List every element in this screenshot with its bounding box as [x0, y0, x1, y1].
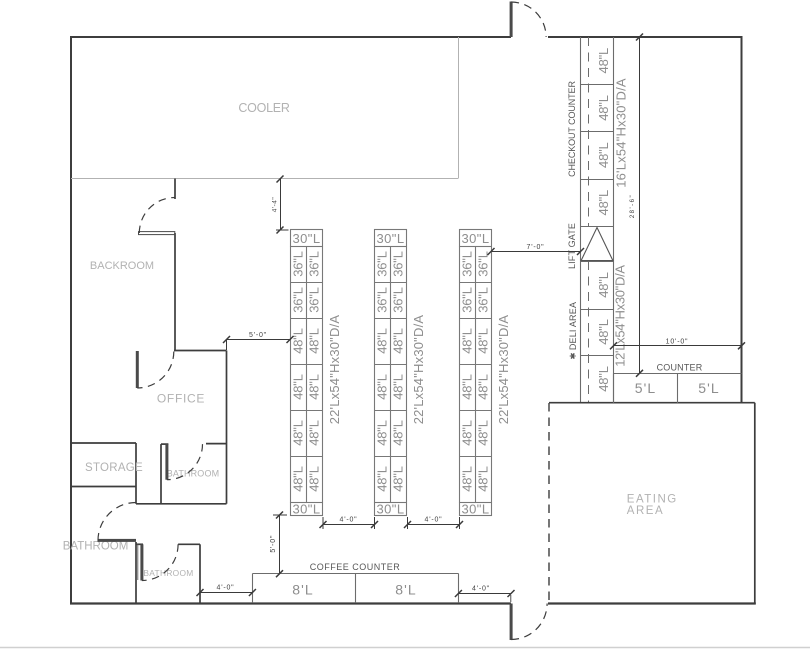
svg-text:LIFT GATE: LIFT GATE — [567, 223, 577, 269]
svg-text:BATHROOM: BATHROOM — [63, 541, 129, 553]
svg-text:AREA: AREA — [627, 505, 664, 517]
svg-text:BATHROOM: BATHROOM — [167, 469, 220, 479]
svg-text:48"L: 48"L — [476, 374, 491, 400]
svg-text:48"L: 48"L — [375, 466, 390, 492]
svg-text:4'-4": 4'-4" — [272, 197, 279, 213]
svg-text:48"L: 48"L — [476, 466, 491, 492]
svg-text:48"L: 48"L — [375, 328, 390, 354]
svg-text:48"L: 48"L — [307, 328, 322, 354]
svg-text:EATING: EATING — [627, 494, 678, 506]
svg-text:48"L: 48"L — [596, 95, 611, 121]
svg-text:48"L: 48"L — [391, 328, 406, 354]
svg-text:STORAGE: STORAGE — [85, 462, 143, 474]
svg-text:48"L: 48"L — [375, 374, 390, 400]
svg-text:28'-6": 28'-6" — [630, 194, 636, 218]
svg-text:30"L: 30"L — [293, 231, 321, 246]
svg-text:10'-0": 10'-0" — [666, 338, 689, 345]
svg-text:48"L: 48"L — [391, 374, 406, 400]
svg-text:30"L: 30"L — [293, 501, 321, 516]
svg-text:5'L: 5'L — [698, 380, 720, 396]
svg-text:OFFICE: OFFICE — [157, 392, 205, 406]
svg-text:5'L: 5'L — [635, 380, 657, 396]
svg-text:30"L: 30"L — [462, 501, 490, 516]
svg-text:48"L: 48"L — [596, 142, 611, 168]
svg-text:36"L: 36"L — [307, 287, 322, 313]
svg-text:22'Lx54"Hx30"D/A: 22'Lx54"Hx30"D/A — [327, 315, 342, 425]
svg-text:36"L: 36"L — [307, 251, 322, 277]
svg-text:36"L: 36"L — [391, 287, 406, 313]
svg-text:DELI AREA: DELI AREA — [568, 302, 578, 350]
svg-text:48"L: 48"L — [291, 420, 306, 446]
svg-text:COUNTER: COUNTER — [657, 362, 703, 372]
svg-text:48"L: 48"L — [391, 466, 406, 492]
svg-text:36"L: 36"L — [291, 251, 306, 277]
svg-text:48"L: 48"L — [391, 420, 406, 446]
svg-text:30"L: 30"L — [462, 231, 490, 246]
svg-text:COFFEE COUNTER: COFFEE COUNTER — [310, 562, 401, 572]
svg-text:48"L: 48"L — [375, 420, 390, 446]
svg-text:COOLER: COOLER — [238, 101, 290, 115]
svg-text:16'Lx54"Hx30"D/A: 16'Lx54"Hx30"D/A — [614, 78, 629, 188]
svg-text:48"L: 48"L — [291, 328, 306, 354]
svg-text:36"L: 36"L — [291, 287, 306, 313]
svg-text:4'-0": 4'-0" — [425, 517, 443, 524]
svg-text:36"L: 36"L — [391, 251, 406, 277]
svg-text:48"L: 48"L — [291, 466, 306, 492]
svg-text:48"L: 48"L — [307, 466, 322, 492]
svg-text:22'Lx54"Hx30"D/A: 22'Lx54"Hx30"D/A — [496, 315, 511, 425]
svg-text:48"L: 48"L — [596, 319, 611, 345]
svg-text:48"L: 48"L — [460, 374, 475, 400]
svg-text:48"L: 48"L — [307, 374, 322, 400]
svg-text:5'-0": 5'-0" — [270, 535, 277, 553]
svg-text:36"L: 36"L — [375, 251, 390, 277]
svg-text:30"L: 30"L — [377, 501, 405, 516]
svg-text:48"L: 48"L — [460, 328, 475, 354]
svg-text:48"L: 48"L — [307, 420, 322, 446]
svg-text:CHECKOUT COUNTER: CHECKOUT COUNTER — [567, 81, 577, 177]
svg-text:36"L: 36"L — [460, 287, 475, 313]
svg-text:48"L: 48"L — [596, 366, 611, 392]
svg-text:48"L: 48"L — [291, 374, 306, 400]
svg-text:48"L: 48"L — [460, 466, 475, 492]
svg-text:22'Lx54"Hx30"D/A: 22'Lx54"Hx30"D/A — [411, 315, 426, 425]
svg-text:36"L: 36"L — [476, 287, 491, 313]
svg-text:7'-0": 7'-0" — [527, 244, 545, 251]
svg-text:48"L: 48"L — [476, 328, 491, 354]
svg-text:36"L: 36"L — [375, 287, 390, 313]
svg-text:4'-0": 4'-0" — [340, 517, 358, 524]
svg-text:8'L: 8'L — [292, 582, 314, 598]
svg-text:48"L: 48"L — [596, 190, 611, 216]
svg-text:48"L: 48"L — [460, 420, 475, 446]
svg-text:48"L: 48"L — [476, 420, 491, 446]
svg-text:5'-0": 5'-0" — [249, 332, 267, 339]
svg-text:36"L: 36"L — [460, 251, 475, 277]
svg-text:12'Lx54"Hx30"D/A: 12'Lx54"Hx30"D/A — [613, 265, 628, 367]
svg-text:4'-0": 4'-0" — [217, 585, 235, 592]
svg-text:4'-0": 4'-0" — [472, 586, 490, 593]
svg-text:48"L: 48"L — [596, 48, 611, 74]
svg-text:8'L: 8'L — [395, 582, 417, 598]
svg-text:30"L: 30"L — [377, 231, 405, 246]
svg-text:BACKROOM: BACKROOM — [90, 260, 154, 272]
svg-text:48"L: 48"L — [596, 272, 611, 298]
